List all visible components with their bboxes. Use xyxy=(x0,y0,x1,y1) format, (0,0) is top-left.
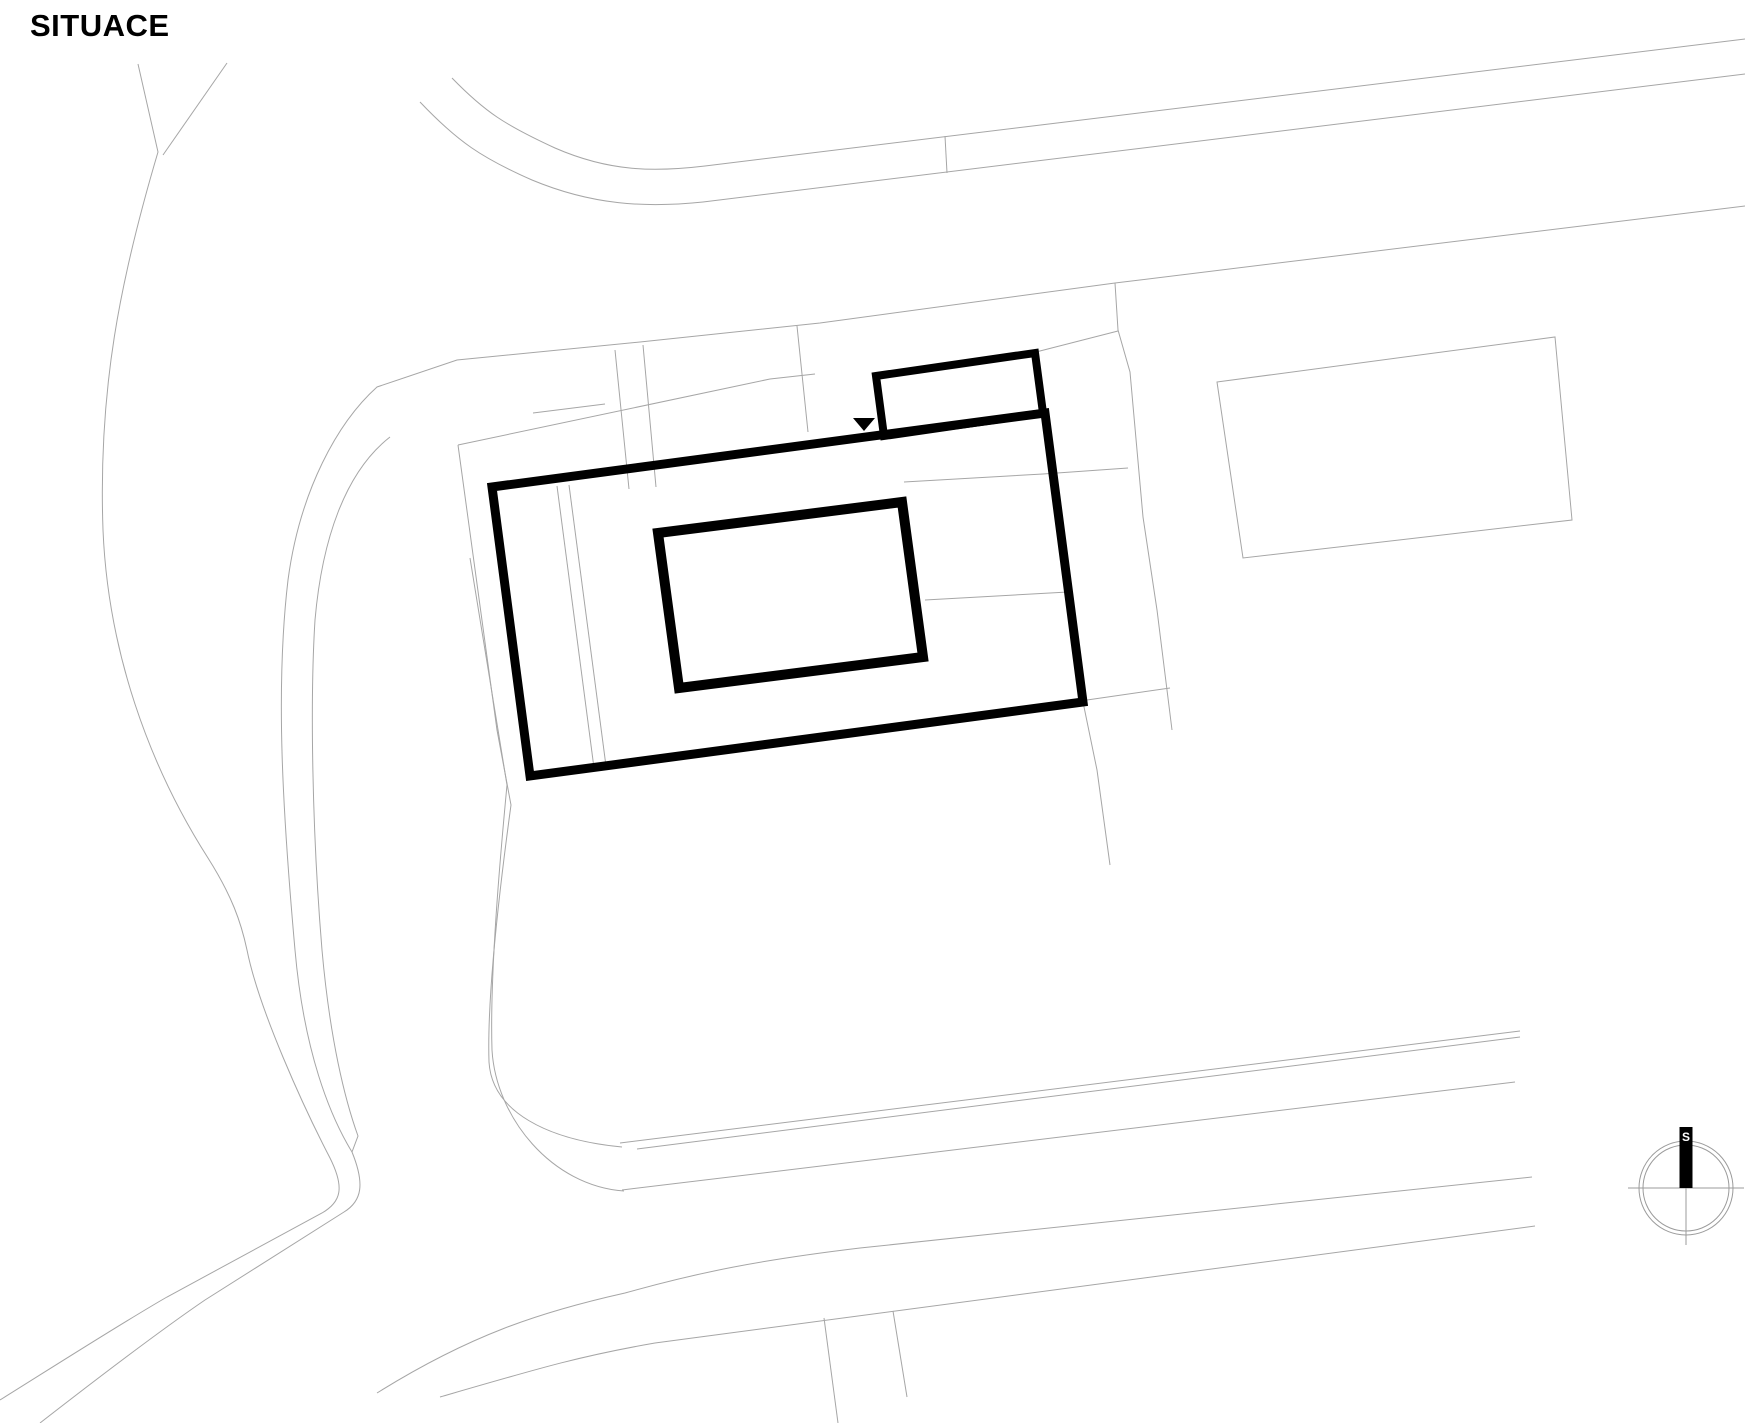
site-plan-drawing: S xyxy=(0,0,1745,1423)
building-north-annex xyxy=(876,353,1043,436)
east-subdivision-3 xyxy=(1087,688,1170,700)
top-road-lower-edge xyxy=(420,74,1745,205)
bottom-road-edge-4 xyxy=(440,1226,1535,1397)
left-road-fence-line xyxy=(312,437,390,1152)
site-plan-sheet: SITUACE xyxy=(0,0,1745,1423)
bottom-road-edge-1b xyxy=(637,1037,1520,1149)
east-neighbour-parcel xyxy=(1217,337,1572,558)
building-inner-courtyard xyxy=(658,502,923,688)
plot-boundary-west xyxy=(458,445,622,1147)
compass-north-label: S xyxy=(1682,1130,1690,1144)
north-plot-boundary xyxy=(40,206,1745,1423)
left-road-outer-edge xyxy=(0,64,339,1400)
interior-partition-2 xyxy=(569,485,606,766)
building-footprint xyxy=(492,353,1083,776)
north-arrow-compass: S xyxy=(1628,1127,1744,1245)
parcel-divider-line xyxy=(797,326,808,432)
driveway-crossing-2 xyxy=(893,1311,907,1397)
bottom-road-edge-3 xyxy=(377,1177,1532,1393)
bottom-road-edge-1a xyxy=(620,1031,1520,1143)
bottom-road-edge-2 xyxy=(622,1082,1515,1190)
left-road-fork-line xyxy=(163,63,227,155)
fence-double-line-segment xyxy=(533,404,605,413)
driveway-crossing-1 xyxy=(824,1318,838,1423)
east-subdivision-1 xyxy=(904,468,1128,482)
parcel-ne-segment xyxy=(1036,331,1118,352)
plot-boundary-west-2 xyxy=(470,558,624,1191)
southeast-boundary xyxy=(1083,702,1110,865)
plot-boundary-top xyxy=(458,374,815,445)
east-subdivision-2 xyxy=(925,592,1068,600)
east-parcel-line xyxy=(1115,283,1172,730)
interior-partition-1 xyxy=(557,486,594,768)
building-outer-wall xyxy=(492,413,1083,776)
top-road-tick xyxy=(945,136,947,173)
top-road-upper-edge xyxy=(452,39,1745,169)
entrance-triangle-marker xyxy=(853,418,875,431)
